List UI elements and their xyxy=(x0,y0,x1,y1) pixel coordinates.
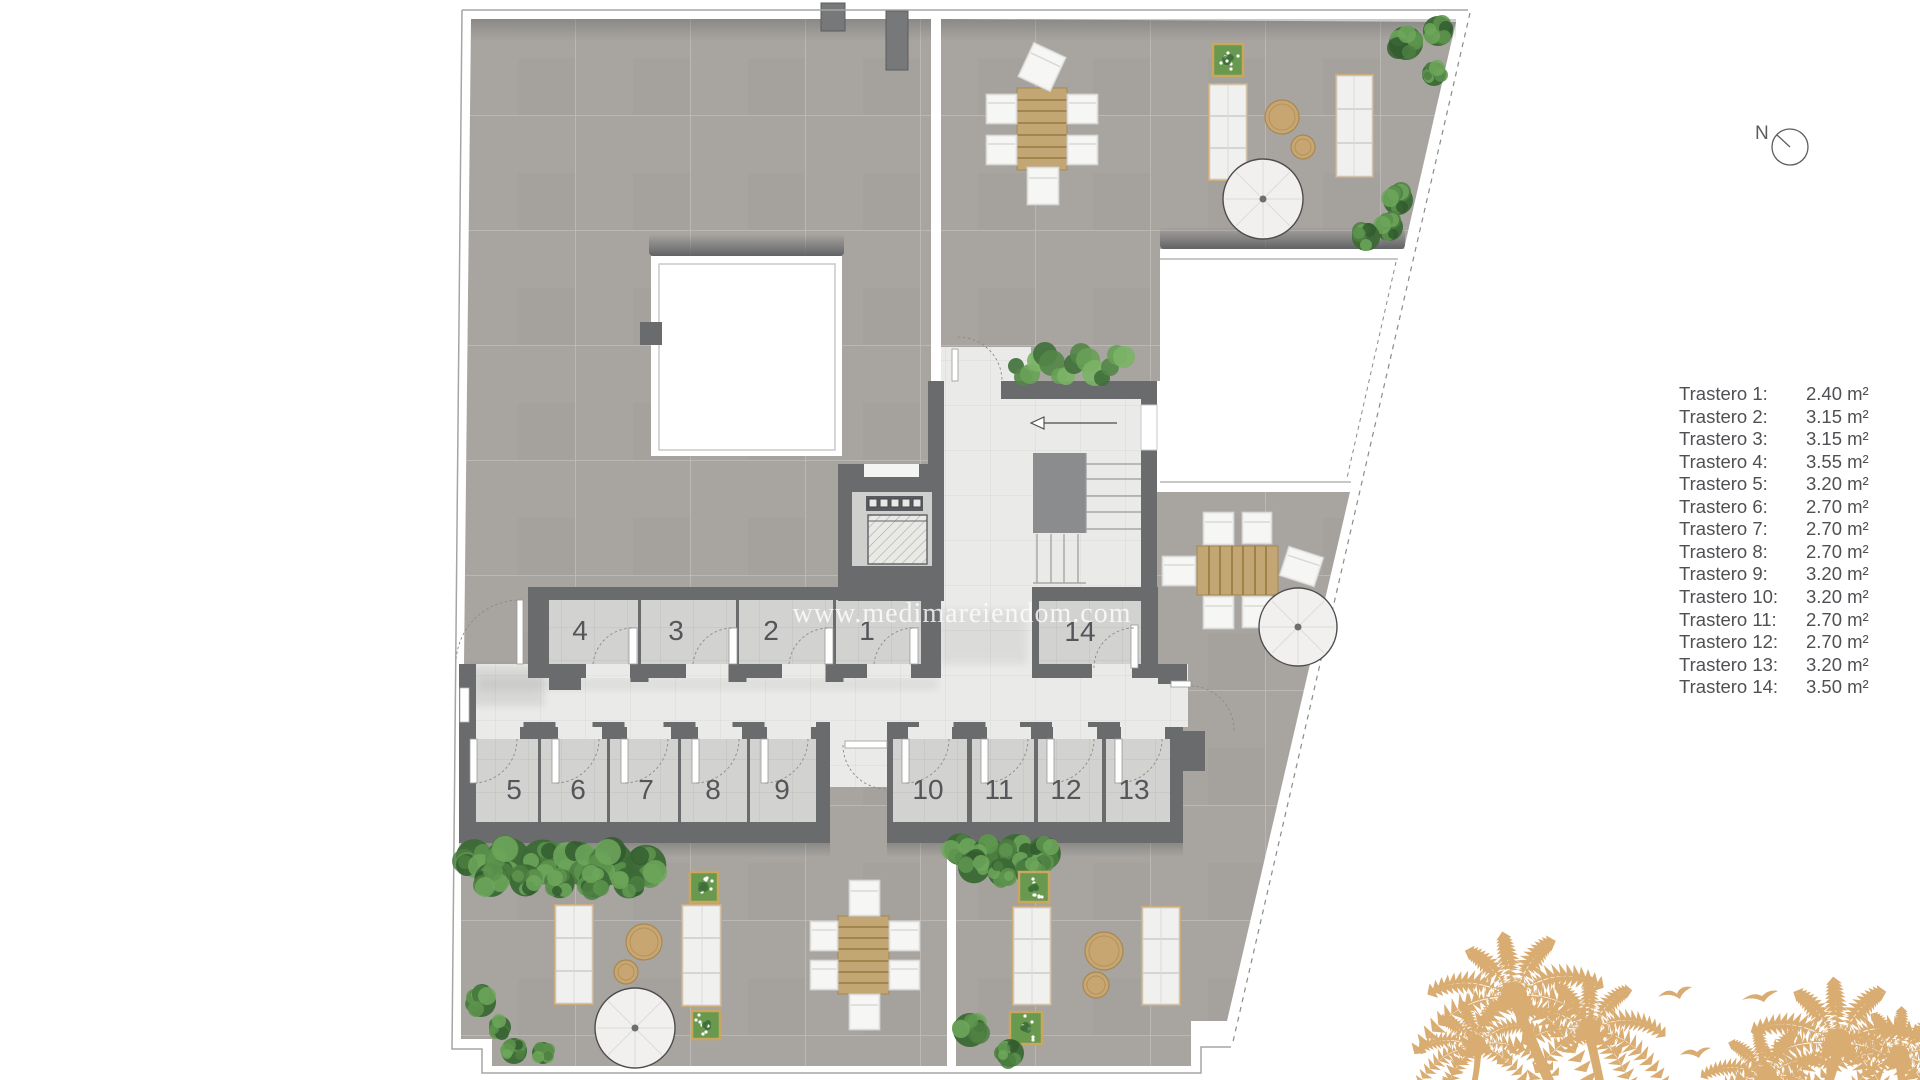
svg-text:10: 10 xyxy=(912,774,943,805)
svg-text:2.70 m²: 2.70 m² xyxy=(1806,631,1869,652)
svg-text:Trastero 6:: Trastero 6: xyxy=(1679,496,1768,517)
svg-text:3.20 m²: 3.20 m² xyxy=(1806,654,1869,675)
svg-text:3.50 m²: 3.50 m² xyxy=(1806,676,1869,697)
svg-text:3.20 m²: 3.20 m² xyxy=(1806,563,1869,584)
svg-text:2.40 m²: 2.40 m² xyxy=(1806,383,1869,404)
svg-text:2: 2 xyxy=(763,615,779,646)
svg-text:Trastero 9:: Trastero 9: xyxy=(1679,563,1768,584)
svg-text:2.70 m²: 2.70 m² xyxy=(1806,609,1869,630)
svg-text:Trastero 11:: Trastero 11: xyxy=(1679,609,1777,630)
svg-text:Trastero 2:: Trastero 2: xyxy=(1679,406,1768,427)
svg-text:6: 6 xyxy=(570,774,586,805)
svg-text:9: 9 xyxy=(774,774,790,805)
svg-text:3.15 m²: 3.15 m² xyxy=(1806,406,1869,427)
svg-text:2.70 m²: 2.70 m² xyxy=(1806,518,1869,539)
svg-text:13: 13 xyxy=(1118,774,1149,805)
svg-text:7: 7 xyxy=(638,774,654,805)
svg-text:Trastero 3:: Trastero 3: xyxy=(1679,428,1768,449)
svg-text:Trastero 5:: Trastero 5: xyxy=(1679,473,1768,494)
svg-text:Trastero 8:: Trastero 8: xyxy=(1679,541,1768,562)
svg-text:Trastero 7:: Trastero 7: xyxy=(1679,518,1768,539)
svg-text:8: 8 xyxy=(705,774,721,805)
svg-text:3.15 m²: 3.15 m² xyxy=(1806,428,1869,449)
svg-text:3.20 m²: 3.20 m² xyxy=(1806,586,1869,607)
svg-text:11: 11 xyxy=(984,774,1013,805)
svg-text:Trastero 10:: Trastero 10: xyxy=(1679,586,1778,607)
svg-text:Trastero 13:: Trastero 13: xyxy=(1679,654,1778,675)
svg-text:3.55 m²: 3.55 m² xyxy=(1806,451,1869,472)
svg-text:4: 4 xyxy=(572,615,588,646)
svg-text:3.20 m²: 3.20 m² xyxy=(1806,473,1869,494)
svg-text:Trastero 14:: Trastero 14: xyxy=(1679,676,1778,697)
svg-text:Trastero 1:: Trastero 1: xyxy=(1679,383,1768,404)
svg-text:www.medimareiendom.com: www.medimareiendom.com xyxy=(793,598,1132,629)
svg-text:5: 5 xyxy=(506,774,522,805)
svg-text:Trastero 12:: Trastero 12: xyxy=(1679,631,1778,652)
svg-text:3: 3 xyxy=(668,615,684,646)
svg-text:2.70 m²: 2.70 m² xyxy=(1806,541,1869,562)
svg-text:12: 12 xyxy=(1050,774,1081,805)
svg-text:N: N xyxy=(1755,123,1769,144)
svg-text:2.70 m²: 2.70 m² xyxy=(1806,496,1869,517)
svg-text:Trastero 4:: Trastero 4: xyxy=(1679,451,1768,472)
